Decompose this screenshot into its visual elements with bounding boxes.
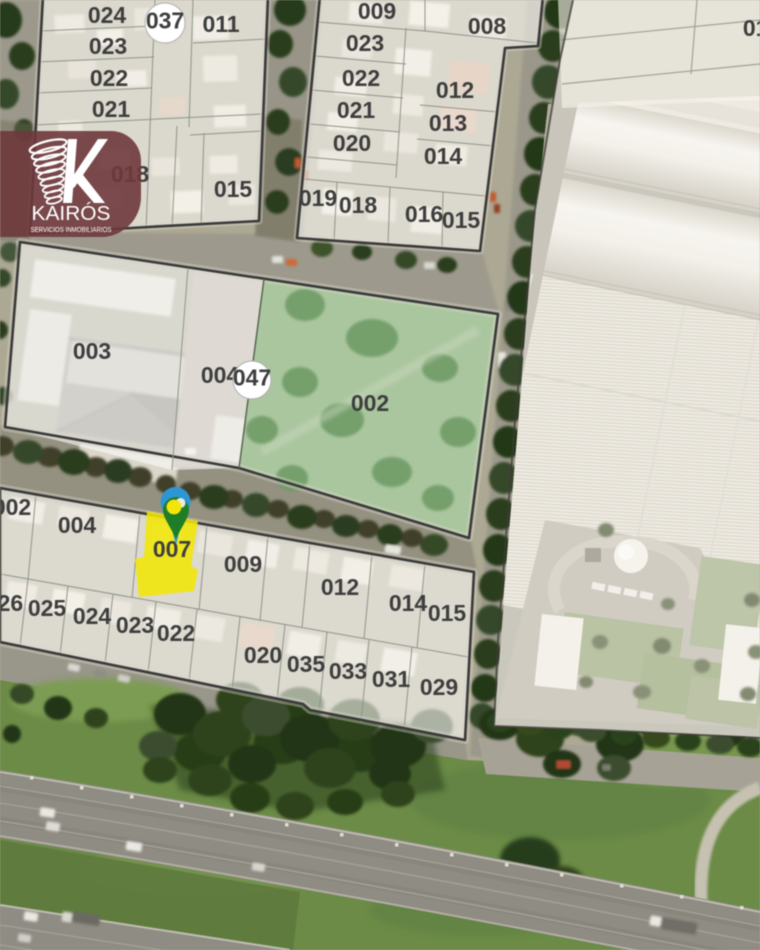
svg-text:037: 037	[146, 8, 184, 34]
svg-text:009: 009	[224, 551, 262, 577]
svg-text:016: 016	[405, 201, 443, 227]
svg-text:024: 024	[88, 2, 127, 28]
svg-text:003: 003	[73, 338, 111, 364]
svg-text:022: 022	[90, 65, 128, 91]
svg-text:023: 023	[116, 612, 154, 638]
svg-text:029: 029	[420, 674, 458, 700]
svg-text:014: 014	[424, 143, 463, 169]
svg-text:015: 015	[214, 176, 253, 202]
svg-text:047: 047	[233, 365, 271, 391]
svg-text:035: 035	[287, 651, 326, 677]
svg-text:014: 014	[389, 590, 428, 616]
svg-text:012: 012	[321, 574, 359, 600]
svg-text:018: 018	[743, 15, 760, 41]
svg-text:011: 011	[202, 11, 239, 37]
svg-text:012: 012	[436, 77, 474, 103]
svg-text:024: 024	[73, 603, 112, 629]
svg-text:009: 009	[358, 0, 396, 24]
svg-text:033: 033	[329, 658, 367, 684]
svg-text:019: 019	[299, 185, 337, 211]
svg-text:SERVICIOS INMOBILIARIOS: SERVICIOS INMOBILIARIOS	[31, 225, 112, 234]
svg-text:031: 031	[372, 666, 411, 692]
svg-text:007: 007	[153, 536, 191, 562]
svg-text:023: 023	[89, 33, 127, 59]
svg-text:021: 021	[337, 97, 376, 123]
svg-text:021: 021	[92, 96, 131, 122]
svg-text:KAIRÓS: KAIRÓS	[32, 202, 111, 225]
svg-text:013: 013	[429, 110, 467, 136]
svg-text:015: 015	[428, 600, 467, 626]
svg-text:020: 020	[333, 130, 371, 156]
svg-text:002: 002	[351, 390, 389, 416]
svg-text:025: 025	[28, 595, 67, 621]
svg-text:008: 008	[468, 13, 507, 39]
svg-text:004: 004	[58, 512, 97, 538]
svg-text:020: 020	[244, 642, 282, 668]
svg-text:002: 002	[0, 494, 31, 520]
svg-text:022: 022	[157, 620, 195, 646]
svg-text:018: 018	[339, 192, 378, 218]
svg-text:023: 023	[346, 30, 384, 56]
svg-text:026: 026	[0, 590, 23, 616]
svg-text:022: 022	[342, 65, 380, 91]
svg-text:015: 015	[442, 207, 481, 233]
